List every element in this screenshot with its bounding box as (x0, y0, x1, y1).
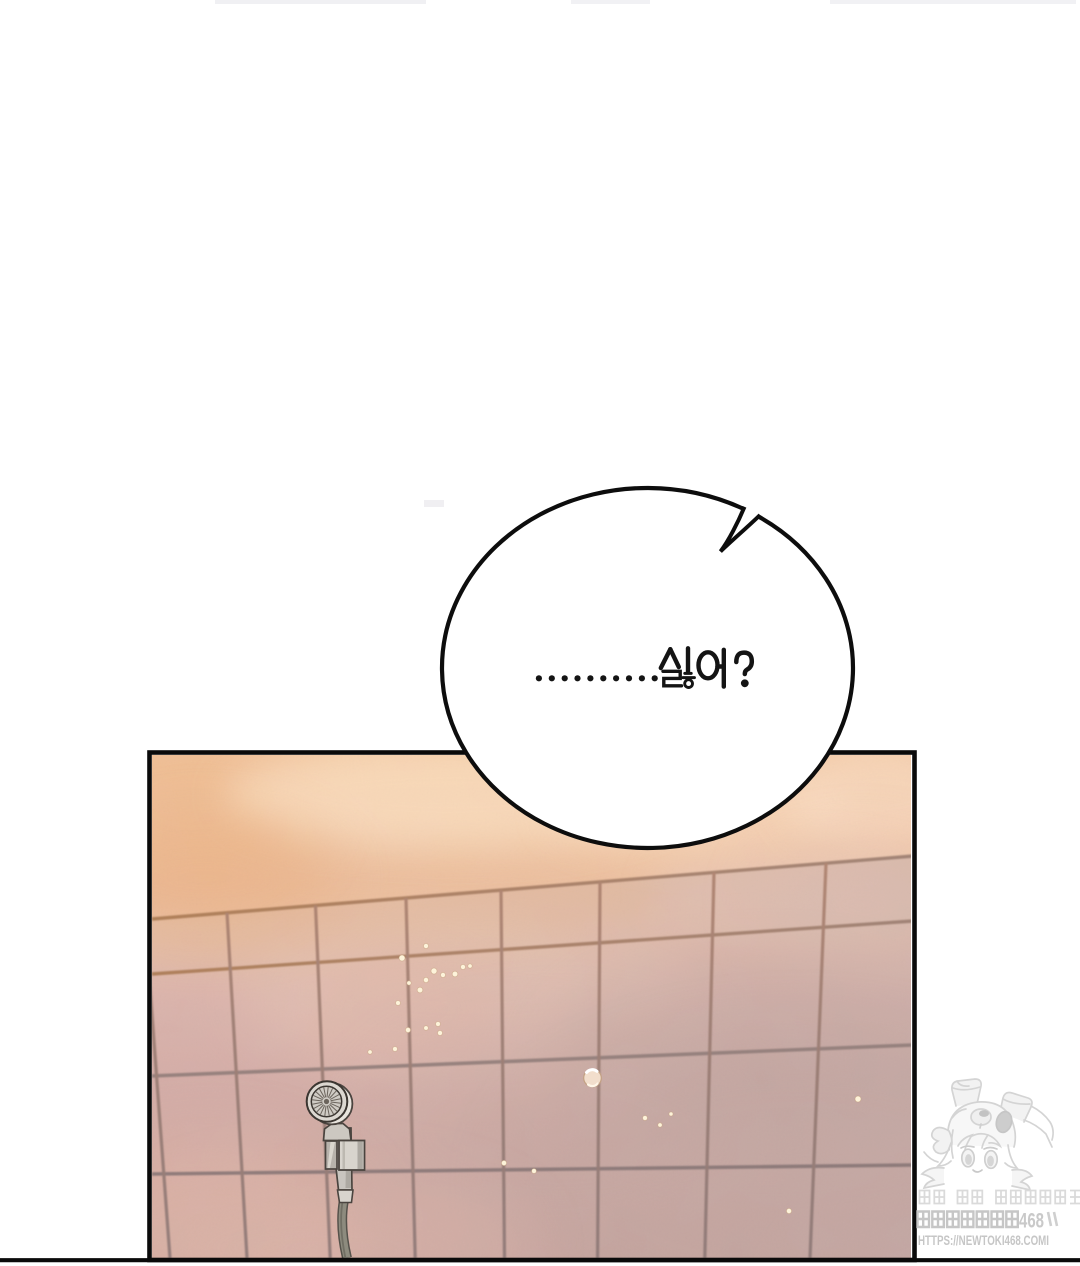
svg-text:HTTPS://NEWTOKI468.COMI: HTTPS://NEWTOKI468.COMI (918, 1233, 1049, 1248)
svg-text:468: 468 (1019, 1210, 1044, 1233)
